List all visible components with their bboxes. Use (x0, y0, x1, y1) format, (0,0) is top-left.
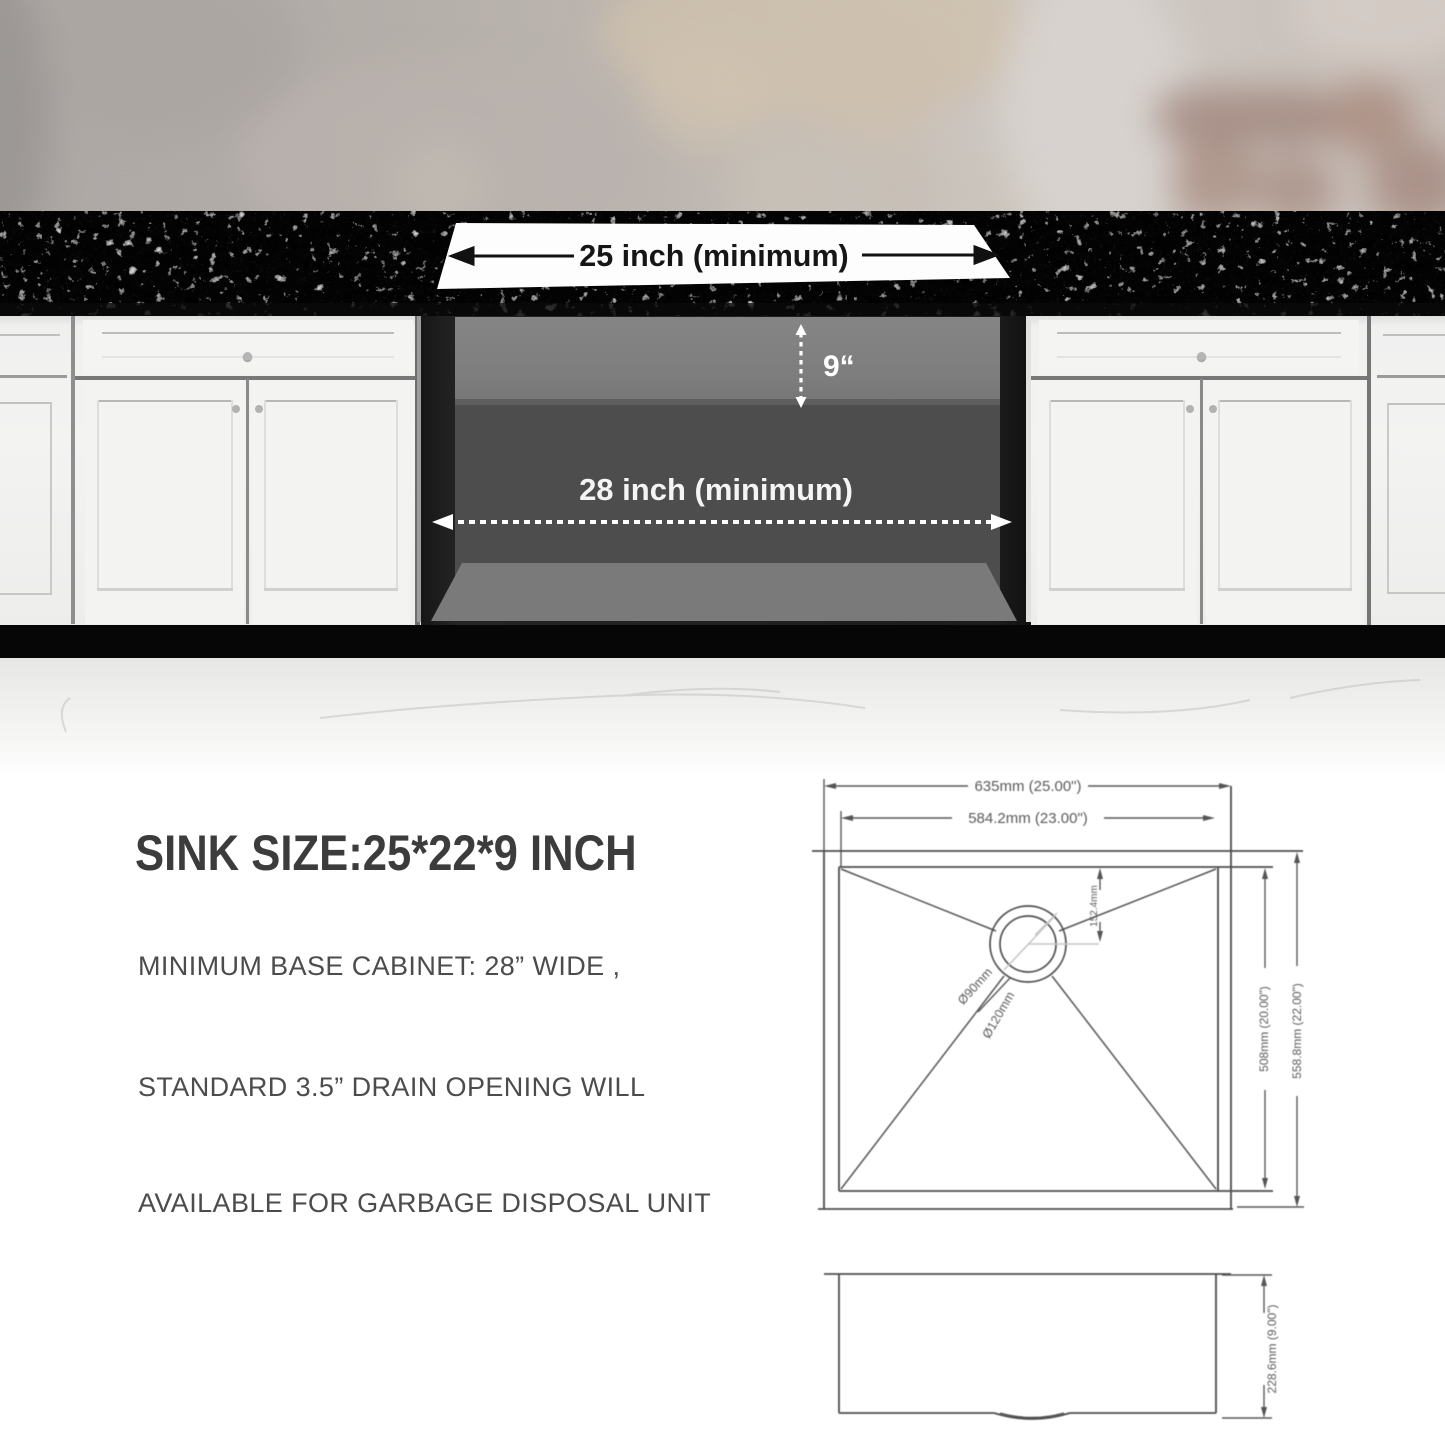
svg-text:25 inch (minimum): 25 inch (minimum) (579, 239, 848, 273)
svg-text:558.8mm (22.00"): 558.8mm (22.00") (1290, 983, 1304, 1079)
svg-text:9“: 9“ (823, 350, 855, 383)
svg-text:635mm (25.00"): 635mm (25.00") (974, 778, 1081, 795)
svg-text:584.2mm (23.00"): 584.2mm (23.00") (968, 810, 1088, 827)
svg-text:152.4mm: 152.4mm (1089, 885, 1100, 927)
svg-text:28 inch (minimum): 28 inch (minimum) (579, 472, 853, 507)
svg-text:Ø120mm: Ø120mm (980, 989, 1018, 1041)
svg-text:508mm (20.00"): 508mm (20.00") (1257, 986, 1271, 1072)
svg-text:228.6mm (9.00"): 228.6mm (9.00") (1265, 1305, 1279, 1394)
